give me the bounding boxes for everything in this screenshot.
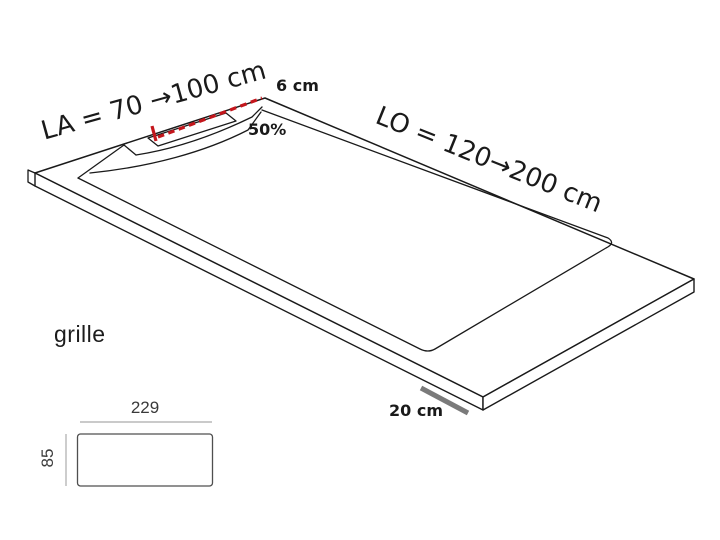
drain-to-edge-label: 6 cm (276, 77, 319, 95)
slope-percent-label: 50% (248, 121, 286, 139)
grille-height-value: 85 (38, 440, 58, 476)
grille-detail-rect (78, 434, 213, 486)
grille-title: grille (54, 322, 106, 347)
tray-left-tip-facet (28, 170, 35, 186)
edge-band-label: 20 cm (389, 402, 443, 420)
line-art-canvas (0, 0, 720, 540)
grille-width-value: 229 (125, 399, 165, 418)
shower-tray-diagram: LA = 70 →100 cm LO = 120→200 cm 6 cm 50%… (0, 0, 720, 540)
tray-top-surface (35, 98, 694, 397)
